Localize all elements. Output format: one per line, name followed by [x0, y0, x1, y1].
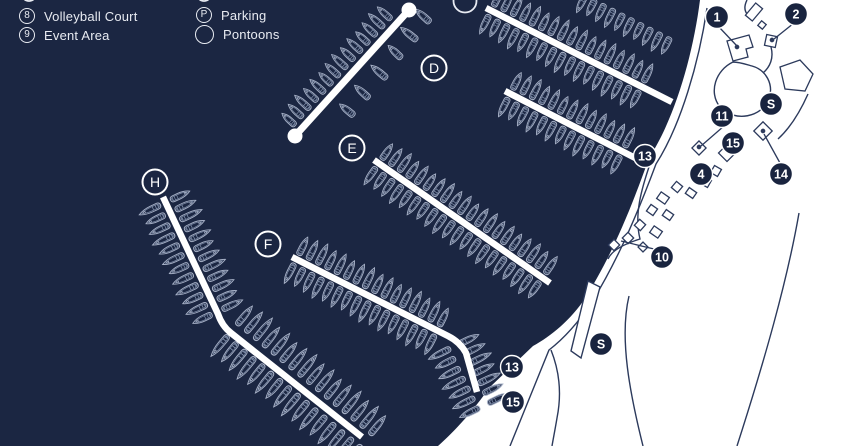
map-marker-15[interactable]: 15	[502, 391, 525, 414]
pontoon-label-text: H	[150, 174, 160, 190]
building	[758, 21, 766, 29]
building	[646, 204, 657, 215]
walkway-end-dot	[288, 129, 303, 144]
marker-text: 10	[655, 251, 669, 265]
marker-text: 13	[505, 361, 519, 375]
map-marker-14[interactable]: 14	[770, 163, 793, 186]
building-dot	[770, 38, 773, 41]
building	[657, 192, 670, 204]
building	[671, 181, 682, 192]
building-dot	[735, 45, 738, 48]
road-path	[763, 47, 772, 73]
map-marker-S[interactable]: S	[760, 93, 783, 116]
marker-text: 13	[638, 150, 652, 164]
map-marker-2[interactable]: 2	[785, 3, 808, 26]
marker-text: 14	[774, 168, 788, 182]
connector-line	[774, 23, 794, 39]
map-marker-13[interactable]: 13	[634, 145, 657, 168]
building	[745, 3, 762, 21]
road-path	[625, 296, 643, 446]
marker-text: 1	[714, 11, 721, 25]
marina-map: DEFH1211S151341410S1315	[0, 0, 867, 446]
map-marker-13[interactable]: 13	[501, 356, 524, 379]
pontoon-label-text: E	[347, 140, 356, 156]
road-path	[737, 213, 799, 446]
building	[780, 60, 813, 91]
marina-map-canvas: DEFH1211S151341410S1315 8Volleyball Cour…	[0, 0, 867, 446]
building-dot	[697, 145, 700, 148]
marker-text: S	[767, 98, 775, 112]
pontoon-label-text: F	[264, 236, 273, 252]
marker-text: S	[597, 338, 605, 352]
marker-text: 4	[698, 168, 705, 182]
building-dot	[761, 129, 764, 132]
marker-text: 11	[715, 110, 728, 124]
map-marker-4[interactable]: 4	[690, 163, 713, 186]
map-marker-10[interactable]: 10	[651, 246, 674, 269]
marker-text: 15	[726, 137, 740, 151]
connector-line	[764, 134, 780, 163]
walkway-end-dot	[402, 3, 417, 18]
map-marker-15[interactable]: 15	[722, 132, 745, 155]
marker-text: 2	[793, 8, 800, 22]
connector-line	[701, 126, 724, 146]
map-marker-S[interactable]: S	[590, 333, 613, 356]
marker-text: 15	[506, 396, 520, 410]
water-area	[0, 0, 700, 446]
road-path	[551, 350, 559, 446]
building	[634, 219, 645, 230]
pontoon-label-text: D	[429, 60, 439, 76]
map-marker-1[interactable]: 1	[706, 6, 729, 29]
building	[662, 210, 673, 221]
map-marker-11[interactable]: 11	[711, 105, 734, 128]
building	[685, 188, 696, 199]
building	[650, 226, 663, 238]
